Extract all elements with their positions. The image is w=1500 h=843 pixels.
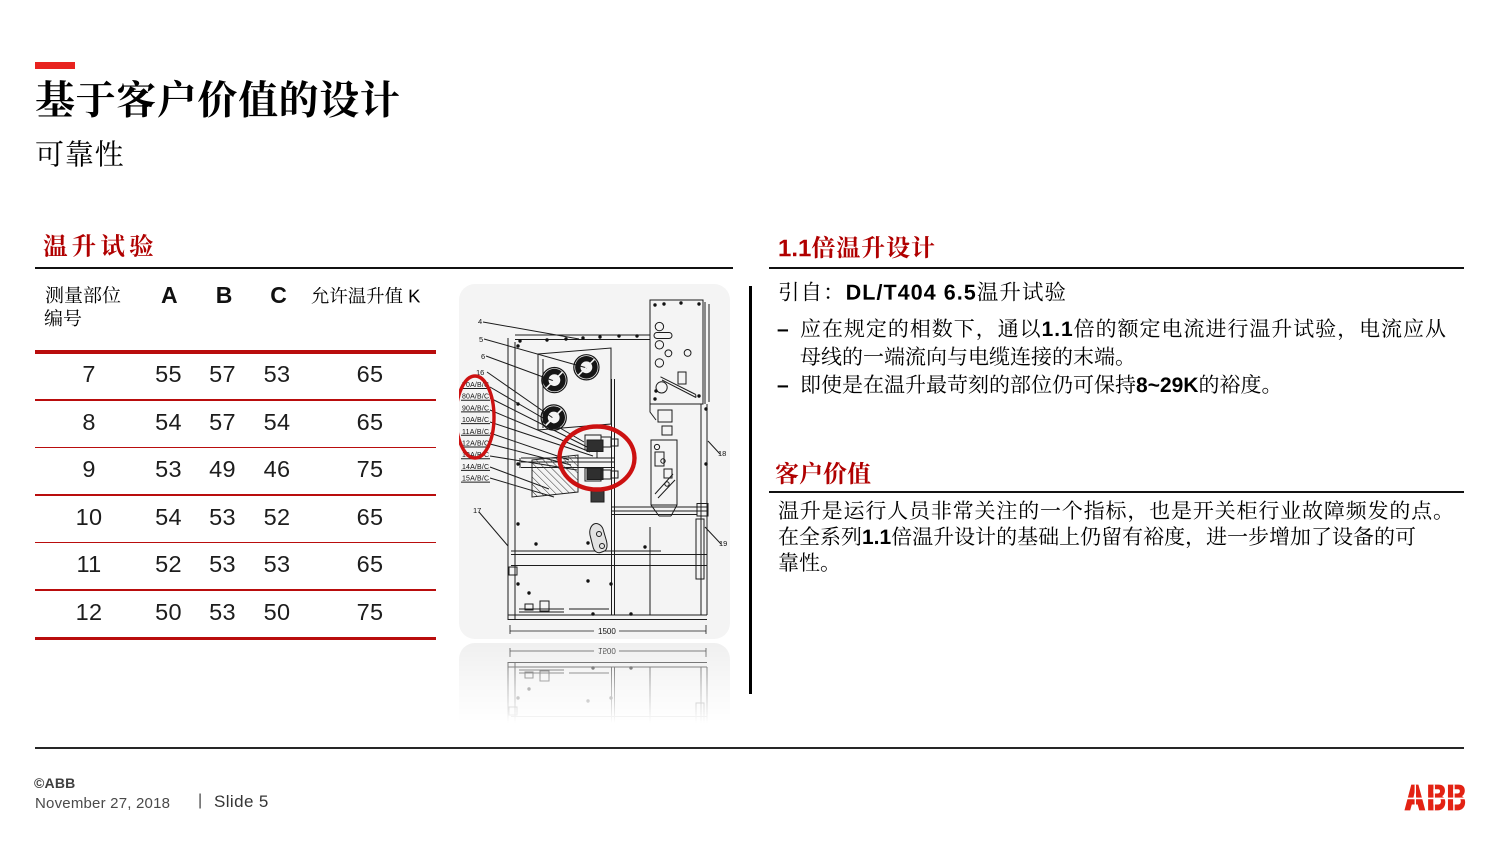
svg-text:6: 6 bbox=[481, 352, 485, 361]
svg-text:5: 5 bbox=[479, 335, 483, 344]
svg-text:90A/B/C: 90A/B/C bbox=[462, 405, 489, 412]
svg-text:11A/B/C: 11A/B/C bbox=[462, 429, 489, 436]
svg-text:14A/B/C: 14A/B/C bbox=[462, 464, 489, 471]
svg-text:18: 18 bbox=[718, 449, 726, 458]
svg-text:1500: 1500 bbox=[598, 627, 616, 636]
svg-text:4: 4 bbox=[478, 317, 482, 326]
svg-text:80A/B/C: 80A/B/C bbox=[462, 394, 489, 401]
svg-text:10A/B/C: 10A/B/C bbox=[462, 417, 489, 424]
svg-text:19: 19 bbox=[719, 539, 727, 548]
svg-text:12A/B/C: 12A/B/C bbox=[462, 441, 489, 448]
svg-text:15A/B/C: 15A/B/C bbox=[462, 476, 489, 483]
svg-text:17: 17 bbox=[473, 506, 481, 515]
svg-text:19: 19 bbox=[719, 734, 727, 743]
svg-text:1500: 1500 bbox=[598, 646, 616, 655]
